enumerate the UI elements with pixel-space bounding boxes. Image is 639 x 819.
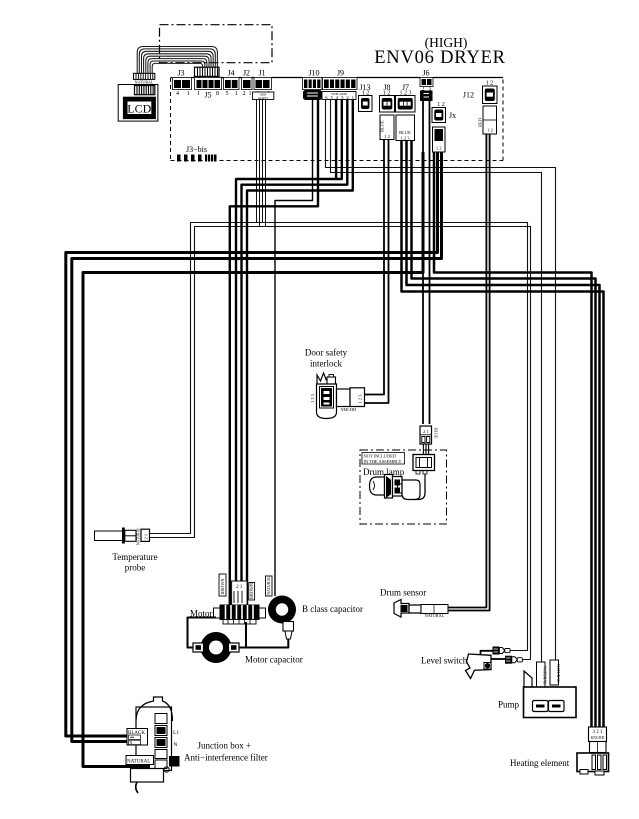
svg-text:KNC/RD: KNC/RD [591, 736, 605, 740]
svg-text:1 2: 1 2 [436, 146, 442, 151]
svg-text:Anti−interference filter: Anti−interference filter [184, 753, 268, 763]
svg-text:1: 1 [249, 91, 252, 97]
svg-text:J3−bis: J3−bis [186, 145, 207, 154]
svg-text:interlock: interlock [310, 359, 342, 369]
svg-text:5: 5 [226, 91, 229, 97]
svg-text:8: 8 [216, 91, 219, 97]
svg-text:L1: L1 [173, 730, 179, 736]
svg-text:NATURAL: NATURAL [425, 613, 445, 618]
svg-text:1 2 3: 1 2 3 [310, 393, 315, 403]
svg-text:J6: J6 [422, 69, 429, 78]
svg-text:WHT.AMP: WHT.AMP [331, 92, 347, 96]
svg-text:Level switch: Level switch [421, 656, 468, 666]
svg-text:NATURAL: NATURAL [137, 527, 141, 545]
svg-text:LCD: LCD [127, 102, 151, 116]
svg-text:N: N [174, 742, 178, 748]
svg-text:Heating element: Heating element [510, 758, 570, 768]
svg-text:BROWN: BROWN [220, 579, 225, 595]
svg-text:Jx: Jx [449, 111, 456, 120]
svg-text:BROWN: BROWN [249, 583, 254, 599]
svg-text:J2: J2 [243, 69, 250, 78]
svg-text:Drum sensor: Drum sensor [380, 588, 426, 598]
svg-text:NOT INCLUDED: NOT INCLUDED [364, 454, 396, 459]
svg-text:1 2: 1 2 [384, 134, 390, 139]
svg-text:BLUE: BLUE [434, 428, 439, 439]
svg-text:NATURAL: NATURAL [127, 760, 150, 765]
svg-text:Junction box +: Junction box + [198, 741, 252, 751]
svg-text:NATURAL: NATURAL [135, 79, 154, 84]
svg-text:IN THE ASSEMBLY: IN THE ASSEMBLY [364, 459, 403, 464]
svg-text:1 2: 1 2 [487, 128, 493, 133]
svg-text:J12: J12 [463, 91, 474, 100]
svg-text:BLUE: BLUE [399, 130, 411, 135]
svg-text:J1: J1 [258, 69, 265, 78]
svg-text:BLUE: BLUE [380, 120, 385, 132]
svg-text:NMCHH: NMCHH [341, 407, 357, 412]
svg-text:2: 2 [347, 95, 349, 100]
svg-text:J3: J3 [177, 69, 184, 78]
svg-text:2 1: 2 1 [144, 534, 149, 540]
svg-text:J4: J4 [227, 69, 234, 78]
svg-text:B class capacitor: B class capacitor [302, 604, 363, 614]
svg-text:NATURAL: NATURAL [556, 664, 561, 683]
svg-text:RED: RED [478, 117, 483, 127]
svg-text:1: 1 [187, 91, 190, 97]
svg-text:ENV06 DRYER: ENV06 DRYER [374, 48, 506, 68]
svg-text:probe: probe [125, 563, 146, 573]
svg-text:1 2 3: 1 2 3 [401, 136, 411, 141]
svg-text:2 1: 2 1 [236, 585, 243, 590]
svg-text:2 1: 2 1 [423, 429, 429, 434]
svg-text:J5: J5 [204, 91, 211, 100]
svg-text:1: 1 [235, 91, 238, 97]
svg-text:4: 4 [176, 91, 179, 97]
svg-text:Motor capacitor: Motor capacitor [245, 655, 303, 665]
svg-text:644EP1: 644EP1 [258, 96, 269, 100]
svg-text:Door safety: Door safety [305, 348, 348, 358]
svg-text:J9: J9 [337, 69, 344, 78]
svg-text:Pump: Pump [498, 700, 520, 710]
svg-text:N: N [130, 740, 133, 745]
svg-text:J10: J10 [308, 69, 319, 78]
svg-text:3 2 1: 3 2 1 [593, 730, 604, 735]
svg-text:1 2 3: 1 2 3 [358, 394, 363, 404]
svg-text:2: 2 [243, 91, 246, 97]
svg-text:Drum lamp: Drum lamp [363, 467, 405, 477]
svg-text:Temperature: Temperature [112, 552, 157, 562]
svg-text:1: 1 [352, 95, 354, 100]
svg-text:NATURAL: NATURAL [543, 666, 548, 685]
svg-text:1: 1 [197, 91, 200, 97]
svg-text:NATURAL: NATURAL [266, 576, 271, 595]
